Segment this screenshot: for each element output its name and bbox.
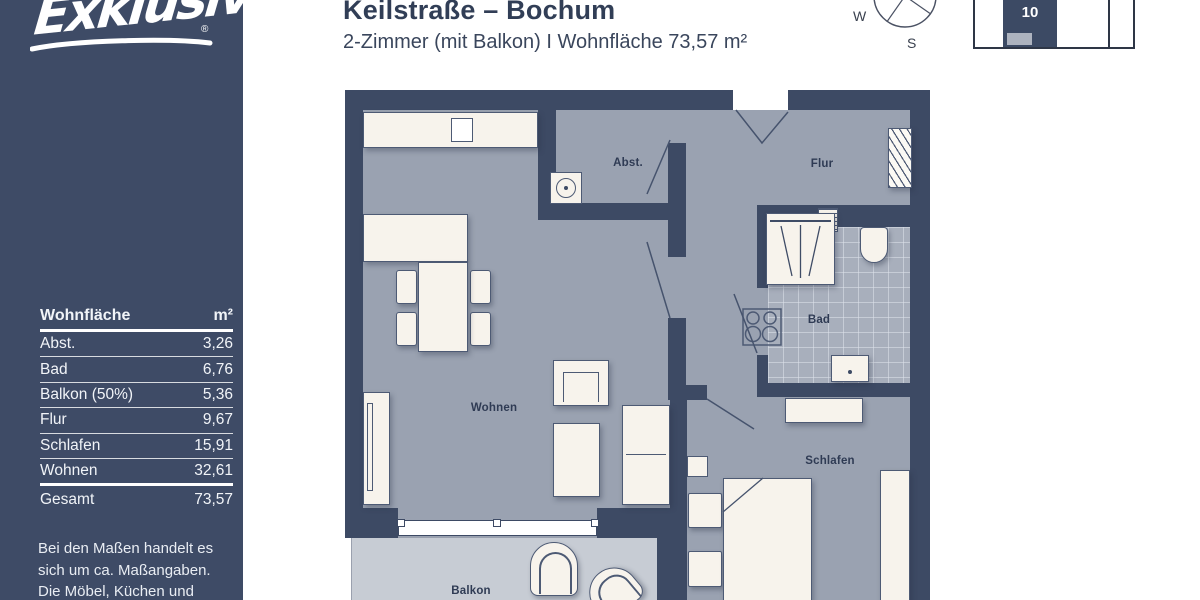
disclaimer-line: sich um ca. Maßangaben. (38, 560, 240, 582)
compass-south-label: S (907, 35, 916, 51)
page-title: Keilstraße – Bochum (343, 0, 615, 26)
table-row: Balkon (50%) 5,36 (40, 383, 233, 408)
chair (470, 270, 491, 304)
area-table-header: Wohnfläche m² (40, 303, 233, 332)
total-label: Gesamt (40, 491, 94, 509)
wardrobe (880, 470, 910, 600)
washer-dot (564, 186, 568, 190)
washbasin (831, 355, 869, 382)
sofa-seam (626, 454, 666, 455)
bed (723, 478, 812, 600)
radiator-icon (888, 128, 912, 188)
stove-icon (742, 308, 782, 346)
room-label-bad: Bad (808, 314, 830, 326)
total-value: 73,57 (194, 491, 233, 509)
table-row: Bad 6,76 (40, 357, 233, 382)
wall (345, 90, 733, 110)
pillow (688, 551, 722, 587)
disclaimer-text: Bei den Maßen handelt es sich um ca. Maß… (38, 538, 240, 600)
wall (668, 318, 686, 385)
wall (345, 508, 398, 538)
compass-west-label: W (853, 8, 867, 24)
page-subtitle: 2-Zimmer (mit Balkon) I Wohnfläche 73,57… (343, 31, 747, 54)
row-label: Schlafen (40, 437, 100, 455)
chair (396, 312, 417, 346)
logo-swash-underline (30, 36, 215, 54)
sidebar: Exklusiv ® Wohnfläche m² Abst. 3,26 Bad … (0, 0, 243, 600)
unit-number: 10 (1003, 4, 1057, 21)
tv-board (363, 392, 390, 505)
kitchen-sink-icon (451, 118, 473, 142)
wall (345, 110, 363, 538)
dining-table (418, 262, 468, 352)
compass-icon: W S (845, 0, 937, 52)
row-label: Flur (40, 411, 67, 429)
room-label-wohnen: Wohnen (471, 402, 517, 414)
row-label: Abst. (40, 335, 75, 353)
basin-drain (848, 370, 852, 374)
wall (668, 385, 707, 400)
row-label: Wohnen (40, 462, 97, 480)
area-table-unit: m² (213, 307, 233, 325)
table-row: Schlafen 15,91 (40, 434, 233, 459)
balcony-window (398, 520, 597, 536)
area-table: Wohnfläche m² Abst. 3,26 Bad 6,76 Balkon… (40, 303, 233, 513)
wall (910, 110, 930, 600)
window-mark-icon (493, 519, 501, 527)
table-row: Wohnen 32,61 (40, 459, 233, 486)
area-table-title: Wohnfläche (40, 307, 130, 325)
window-mark-icon (397, 519, 405, 527)
table-row: Flur 9,67 (40, 408, 233, 433)
row-label: Balkon (50%) (40, 386, 133, 404)
registered-trademark-icon: ® (201, 24, 208, 35)
wall (657, 538, 687, 600)
floorplan: Abst. Flur Bad Wohnen Schlafen Balkon (345, 90, 930, 600)
wall (757, 383, 930, 397)
wall (538, 203, 672, 220)
room-label-abst: Abst. (613, 157, 643, 169)
balcony-chair (530, 542, 578, 596)
toilet (860, 227, 888, 263)
row-value: 3,26 (203, 335, 233, 353)
row-value: 32,61 (194, 462, 233, 480)
room-label-flur: Flur (811, 158, 834, 170)
shower (766, 213, 835, 285)
sofa (622, 405, 670, 505)
balcony-marker (1007, 33, 1032, 45)
nightstand (687, 456, 708, 477)
row-value: 6,76 (203, 361, 233, 379)
pillow (688, 493, 722, 528)
highlighted-unit-cell: 10 (1003, 0, 1057, 47)
chair (396, 270, 417, 304)
shower-glass-icon (767, 214, 834, 284)
row-value: 9,67 (203, 411, 233, 429)
row-value: 15,91 (194, 437, 233, 455)
ottoman (553, 423, 600, 497)
table-row: Abst. 3,26 (40, 332, 233, 357)
armchair (553, 360, 609, 406)
sideboard (785, 398, 863, 423)
chair (470, 312, 491, 346)
row-label: Bad (40, 361, 68, 379)
washing-machine-icon (550, 172, 582, 204)
room-label-schlafen: Schlafen (805, 455, 855, 467)
wall (668, 143, 686, 257)
window-mark-icon (591, 519, 599, 527)
room-label-balkon: Balkon (451, 585, 491, 597)
armchair-seat (563, 372, 599, 402)
row-value: 5,36 (203, 386, 233, 404)
disclaimer-line: Die Möbel, Küchen und (38, 581, 240, 600)
tv-board-detail (367, 403, 373, 491)
unit-position-indicator: 10 (973, 0, 1135, 49)
disclaimer-line: Bei den Maßen handelt es (38, 538, 240, 560)
cell-divider (1108, 0, 1110, 47)
kitchen-stove-counter (363, 214, 468, 262)
wall (597, 508, 687, 538)
table-total-row: Gesamt 73,57 (40, 486, 233, 513)
chair-arc (539, 552, 572, 594)
wall (788, 90, 930, 110)
